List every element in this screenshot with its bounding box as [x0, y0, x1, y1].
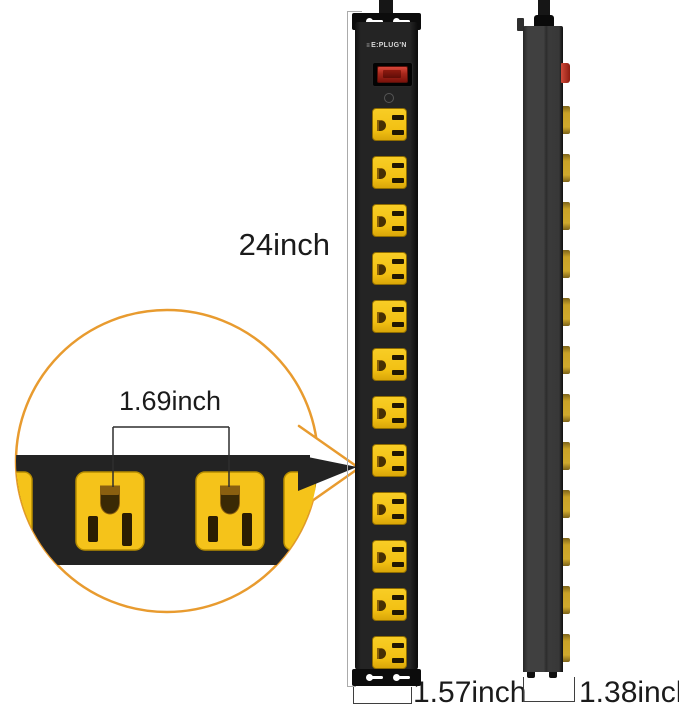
- keyhole-slot-icon: [366, 674, 383, 681]
- power-switch: [372, 62, 413, 87]
- outlet-slot: [392, 178, 404, 183]
- outlet-slot: [208, 516, 218, 542]
- ground-hole-icon: [377, 504, 386, 515]
- outlet-slot: [392, 370, 404, 375]
- outlet-slot: [392, 658, 404, 663]
- side-outlet-edge: [563, 298, 570, 326]
- outlet-slot: [392, 211, 404, 216]
- front-outlet: [372, 108, 407, 141]
- side-foot: [527, 672, 535, 678]
- side-power-switch: [561, 63, 570, 83]
- ground-hole-icon: [377, 120, 386, 131]
- outlet-slot: [392, 595, 404, 600]
- front-outlet: [372, 252, 407, 285]
- side-outlet-edge: [563, 634, 570, 662]
- callout-outlet: [76, 472, 144, 550]
- outlet-slot: [392, 226, 404, 231]
- ground-hole-icon: [377, 456, 386, 467]
- outlet-slot: [392, 418, 404, 423]
- outlet-slot: [392, 451, 404, 456]
- outlet-slot: [392, 307, 404, 312]
- ground-hole-icon: [377, 168, 386, 179]
- outlet-slot: [392, 610, 404, 615]
- outlet-slot: [88, 516, 98, 542]
- outlet-slot: [392, 499, 404, 504]
- side-outlet-edge: [563, 538, 570, 566]
- outlet-spacing-label: 1.69inch: [95, 386, 245, 417]
- outlet-slot: [392, 547, 404, 552]
- side-outlet-edge: [563, 346, 570, 374]
- length-dimension-line: [347, 11, 348, 687]
- front-outlet: [372, 348, 407, 381]
- outlet-slot: [392, 643, 404, 648]
- ground-hole-icon: [377, 264, 386, 275]
- outlet-slot: [392, 259, 404, 264]
- outlet-slot: [392, 514, 404, 519]
- power-switch-light: [383, 70, 401, 78]
- outlet-slot: [392, 163, 404, 168]
- ground-hole-rim: [221, 486, 240, 495]
- ground-hole-icon: [377, 552, 386, 563]
- length-dimension-tick-top: [347, 11, 362, 12]
- front-outlet: [372, 396, 407, 429]
- side-outlet-edge: [563, 106, 570, 134]
- side-depth-label: 1.38inch: [579, 676, 679, 705]
- side-outlet-edge: [563, 250, 570, 278]
- side-outlet-edge: [563, 202, 570, 230]
- ground-hole-icon: [377, 360, 386, 371]
- front-outlet: [372, 204, 407, 237]
- brand-logo-text: E:PLUG'N: [371, 42, 407, 49]
- ground-hole-icon: [377, 648, 386, 659]
- keyhole-slot-icon: [393, 674, 410, 681]
- length-label: 24inch: [210, 227, 330, 263]
- outlet-slot: [392, 115, 404, 120]
- front-outlet: [372, 156, 407, 189]
- outlet-slot: [242, 513, 252, 546]
- brand-mark-icon: ≡: [366, 43, 370, 49]
- outlet-slot: [392, 355, 404, 360]
- callout-outlet: [196, 472, 264, 550]
- power-strip-front-view: ≡E:PLUG'N: [355, 22, 418, 670]
- ground-hole-icon: [377, 312, 386, 323]
- outlet-slot: [392, 403, 404, 408]
- front-outlet: [372, 540, 407, 573]
- ground-hole-icon: [377, 216, 386, 227]
- side-outlet-edge: [563, 154, 570, 182]
- side-outlet-edge: [563, 394, 570, 422]
- side-depth-dimension-bracket: [523, 677, 575, 702]
- side-outlet-edge: [563, 490, 570, 518]
- outlet-spacing-callout: [8, 306, 368, 646]
- ground-hole-icon: [377, 600, 386, 611]
- front-outlet: [372, 300, 407, 333]
- callout-partial-outlet-left: [8, 472, 32, 550]
- brand-logo: ≡E:PLUG'N: [355, 42, 418, 49]
- side-foot: [549, 672, 557, 678]
- product-dimension-diagram: 24inch ≡E:PLUG'N 1.57inch 1.38inch: [0, 0, 679, 705]
- screw-hole-icon: [384, 93, 394, 103]
- outlet-slot: [392, 322, 404, 327]
- outlet-slot: [392, 562, 404, 567]
- front-outlet: [372, 492, 407, 525]
- outlet-slot: [122, 513, 132, 546]
- power-switch-rocker: [377, 66, 408, 83]
- ground-hole-rim: [101, 486, 120, 495]
- front-width-label: 1.57inch: [413, 676, 526, 705]
- ground-hole-icon: [377, 408, 386, 419]
- front-outlet: [372, 444, 407, 477]
- side-outlet-edge: [563, 586, 570, 614]
- outlet-slot: [392, 130, 404, 135]
- front-outlet: [372, 588, 407, 621]
- side-outlet-edge: [563, 442, 570, 470]
- outlet-slot: [392, 466, 404, 471]
- front-outlet: [372, 636, 407, 669]
- front-width-dimension-bracket: [353, 687, 412, 704]
- outlet-slot: [392, 274, 404, 279]
- front-mounting-bracket-bottom: [352, 669, 421, 686]
- power-strip-side-view: [523, 26, 563, 672]
